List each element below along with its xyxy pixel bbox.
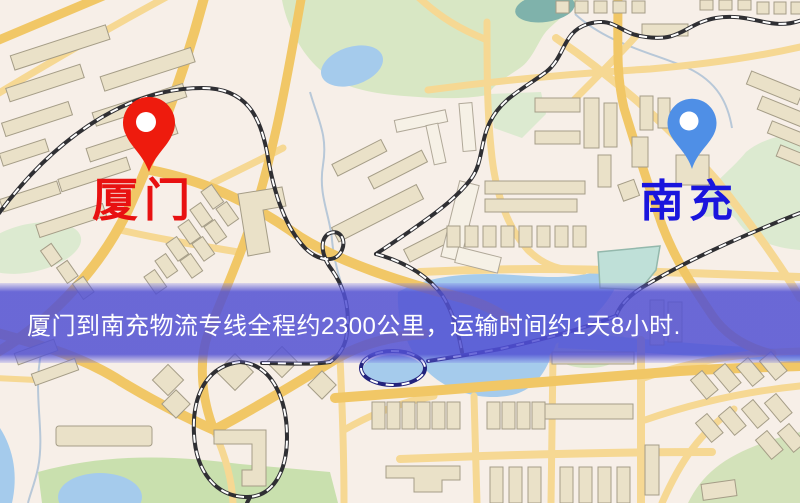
map-canvas [0,0,800,503]
origin-pin-icon [123,97,175,172]
route-info-text: 厦门到南充物流专线全程约2300公里，运输时间约1天8小时. [27,306,681,341]
destination-pin-hole [680,112,699,131]
origin-city-label: 厦门 [92,177,196,223]
destination-city-label: 南充 [640,180,738,224]
logistics-route-map-image: 厦门 南充 厦门到南充物流专线全程约2300公里，运输时间约1天8小时. [0,0,800,503]
origin-pin-hole [136,112,156,132]
route-info-banner: 厦门到南充物流专线全程约2300公里，运输时间约1天8小时. [0,283,800,363]
